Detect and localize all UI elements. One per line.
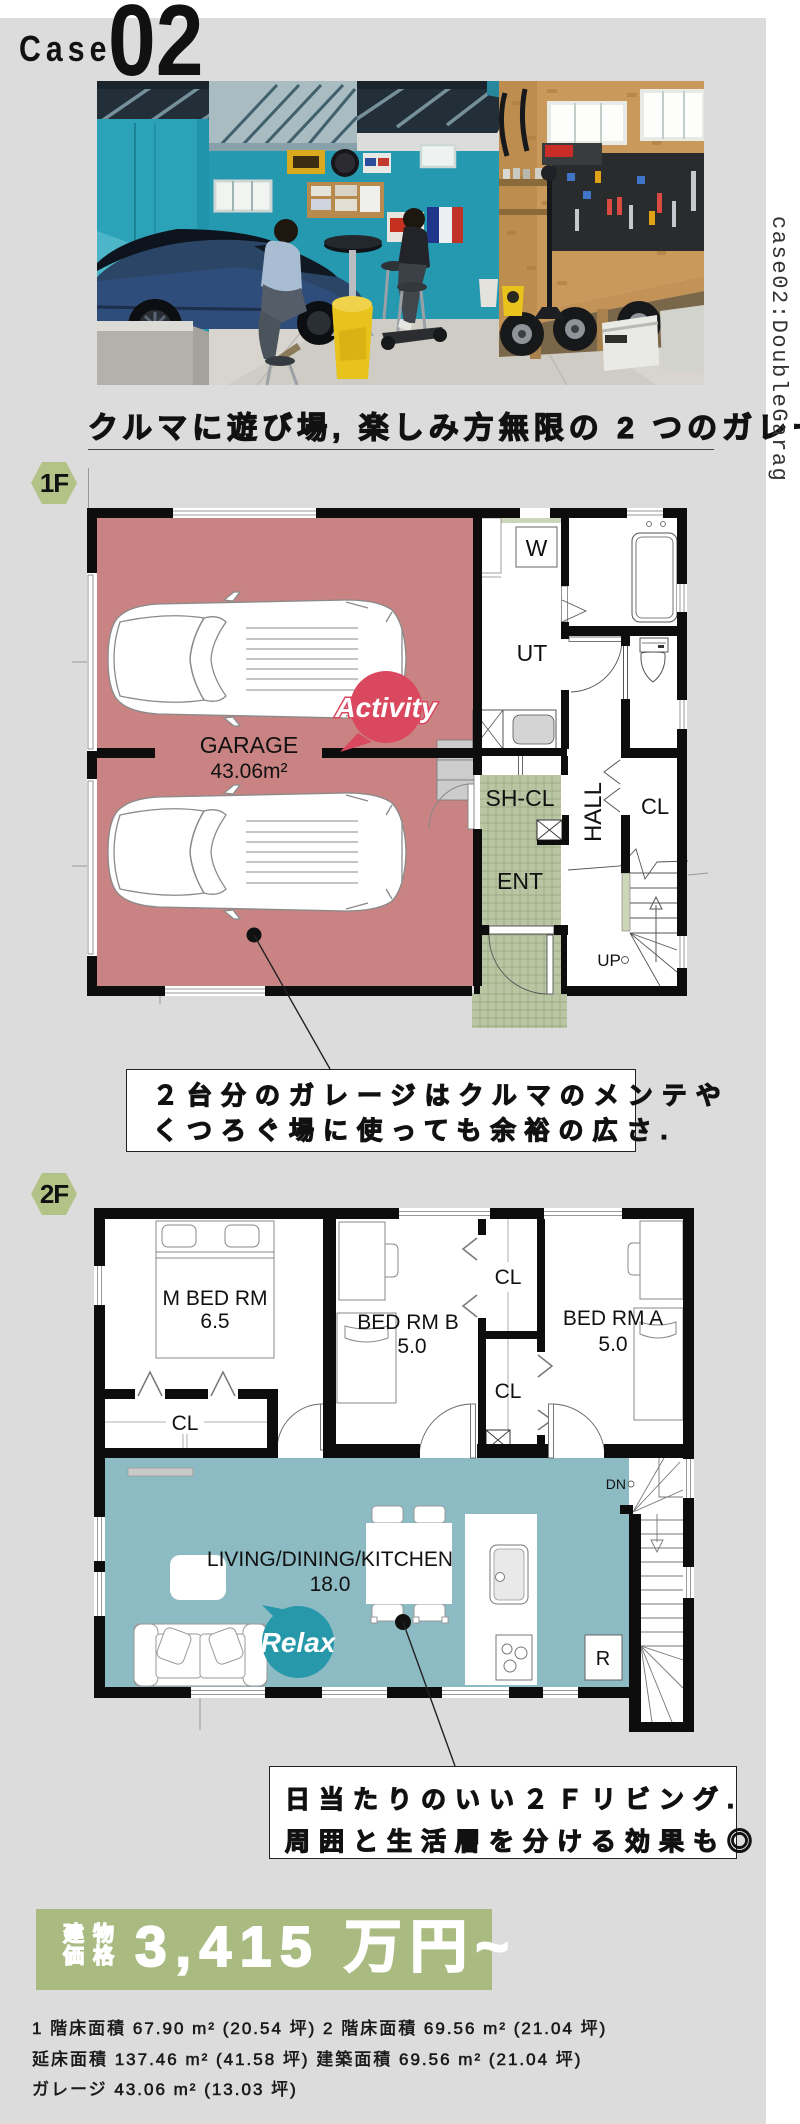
svg-text:CL: CL: [495, 1380, 522, 1403]
svg-text:43.06m²: 43.06m²: [210, 760, 287, 783]
svg-text:UT: UT: [517, 640, 548, 666]
svg-text:6.5: 6.5: [200, 1310, 229, 1333]
svg-text:SH-CL: SH-CL: [485, 785, 554, 811]
svg-text:CL: CL: [172, 1412, 199, 1435]
svg-text:BED RM A: BED RM A: [563, 1307, 663, 1330]
svg-text:Relax: Relax: [261, 1627, 337, 1658]
svg-text:Activity: Activity: [334, 692, 438, 723]
svg-text:GARAGE: GARAGE: [200, 732, 298, 758]
svg-text:HALL: HALL: [580, 782, 607, 842]
svg-text:BED RM B: BED RM B: [357, 1311, 459, 1334]
svg-text:DN: DN: [606, 1476, 626, 1492]
svg-text:18.0: 18.0: [310, 1573, 351, 1596]
svg-text:W: W: [526, 535, 548, 561]
svg-text:2F: 2F: [40, 1179, 68, 1209]
svg-text:UP: UP: [597, 951, 621, 970]
svg-text:CL: CL: [641, 794, 669, 819]
svg-text:R: R: [596, 1648, 610, 1670]
svg-text:5.0: 5.0: [598, 1333, 627, 1356]
svg-text:5.0: 5.0: [397, 1335, 426, 1358]
svg-text:1F: 1F: [40, 468, 68, 498]
svg-text:M BED RM: M BED RM: [163, 1287, 268, 1310]
svg-text:CL: CL: [495, 1266, 522, 1289]
svg-text:ENT: ENT: [497, 868, 543, 894]
svg-text:LIVING/DINING/KITCHEN: LIVING/DINING/KITCHEN: [207, 1548, 453, 1571]
